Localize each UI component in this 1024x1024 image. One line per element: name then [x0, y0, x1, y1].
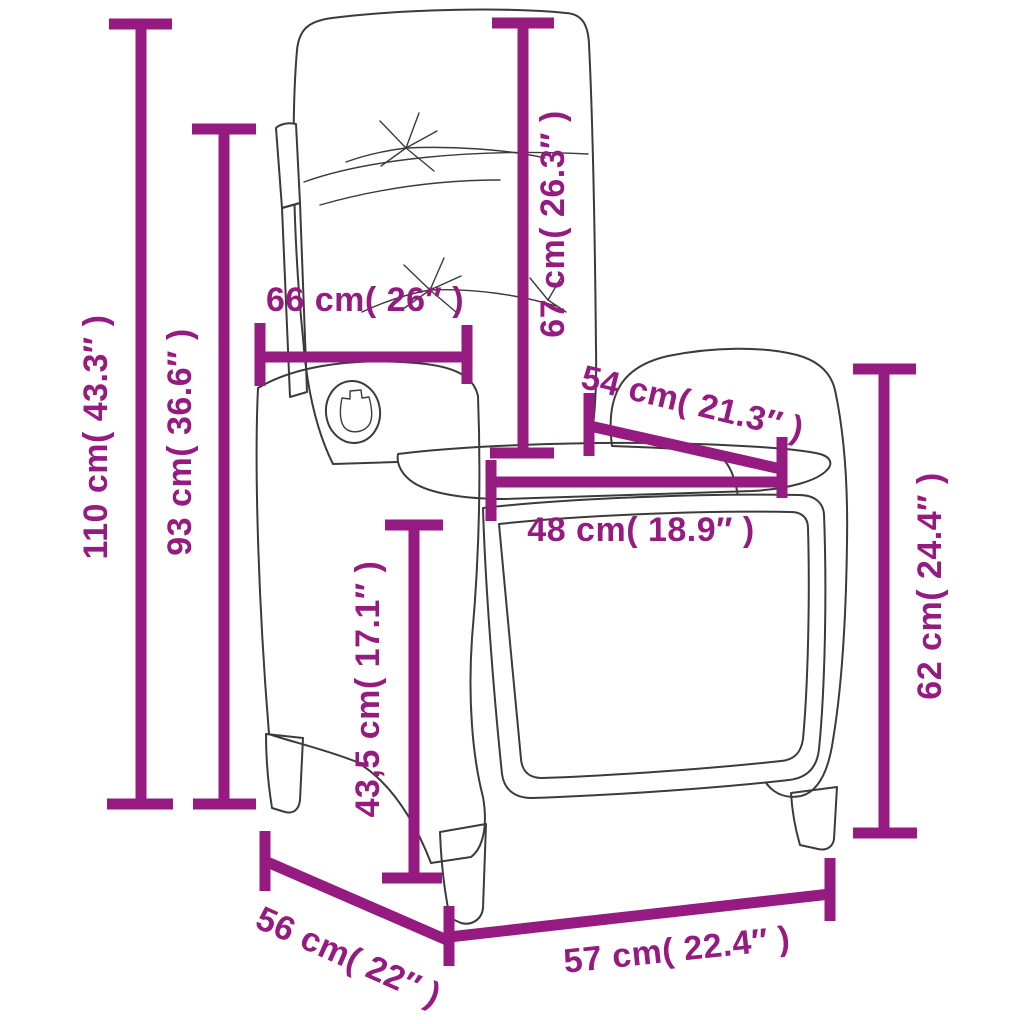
back-post-upper	[276, 123, 300, 208]
rear-left-leg	[266, 734, 303, 813]
dimension-label: 66 cm( 26″ )	[266, 281, 464, 319]
dimension-label: 67 cm( 26.3″ )	[534, 110, 572, 337]
dimension-label: 62 cm( 24.4″ )	[911, 472, 949, 699]
dimension-label: 110 cm( 43.3″ )	[77, 315, 115, 560]
dim-width: 57 cm( 22.4″ )	[449, 858, 830, 981]
product-dimension-diagram: 110 cm( 43.3″ ) 93 cm( 36.6″ ) 66 cm( 26…	[0, 0, 1024, 1024]
dim-backrest-height: 93 cm( 36.6″ )	[161, 129, 256, 804]
dimension-label: 43,5 cm( 17.1″ )	[349, 561, 387, 818]
dimension-label: 56 cm( 22″ )	[250, 899, 446, 1014]
dimension-label: 93 cm( 36.6″ )	[161, 328, 199, 555]
dim-total-height: 110 cm( 43.3″ )	[77, 24, 173, 804]
dimension-label: 48 cm( 18.9″ )	[527, 511, 754, 549]
dimension-label: 57 cm( 22.4″ )	[562, 919, 792, 981]
dim-armrest-height: 62 cm( 24.4″ )	[853, 369, 949, 833]
dim-seat-height: 43,5 cm( 17.1″ )	[349, 525, 443, 878]
diagram-svg: 110 cm( 43.3″ ) 93 cm( 36.6″ ) 66 cm( 26…	[0, 0, 1024, 1024]
